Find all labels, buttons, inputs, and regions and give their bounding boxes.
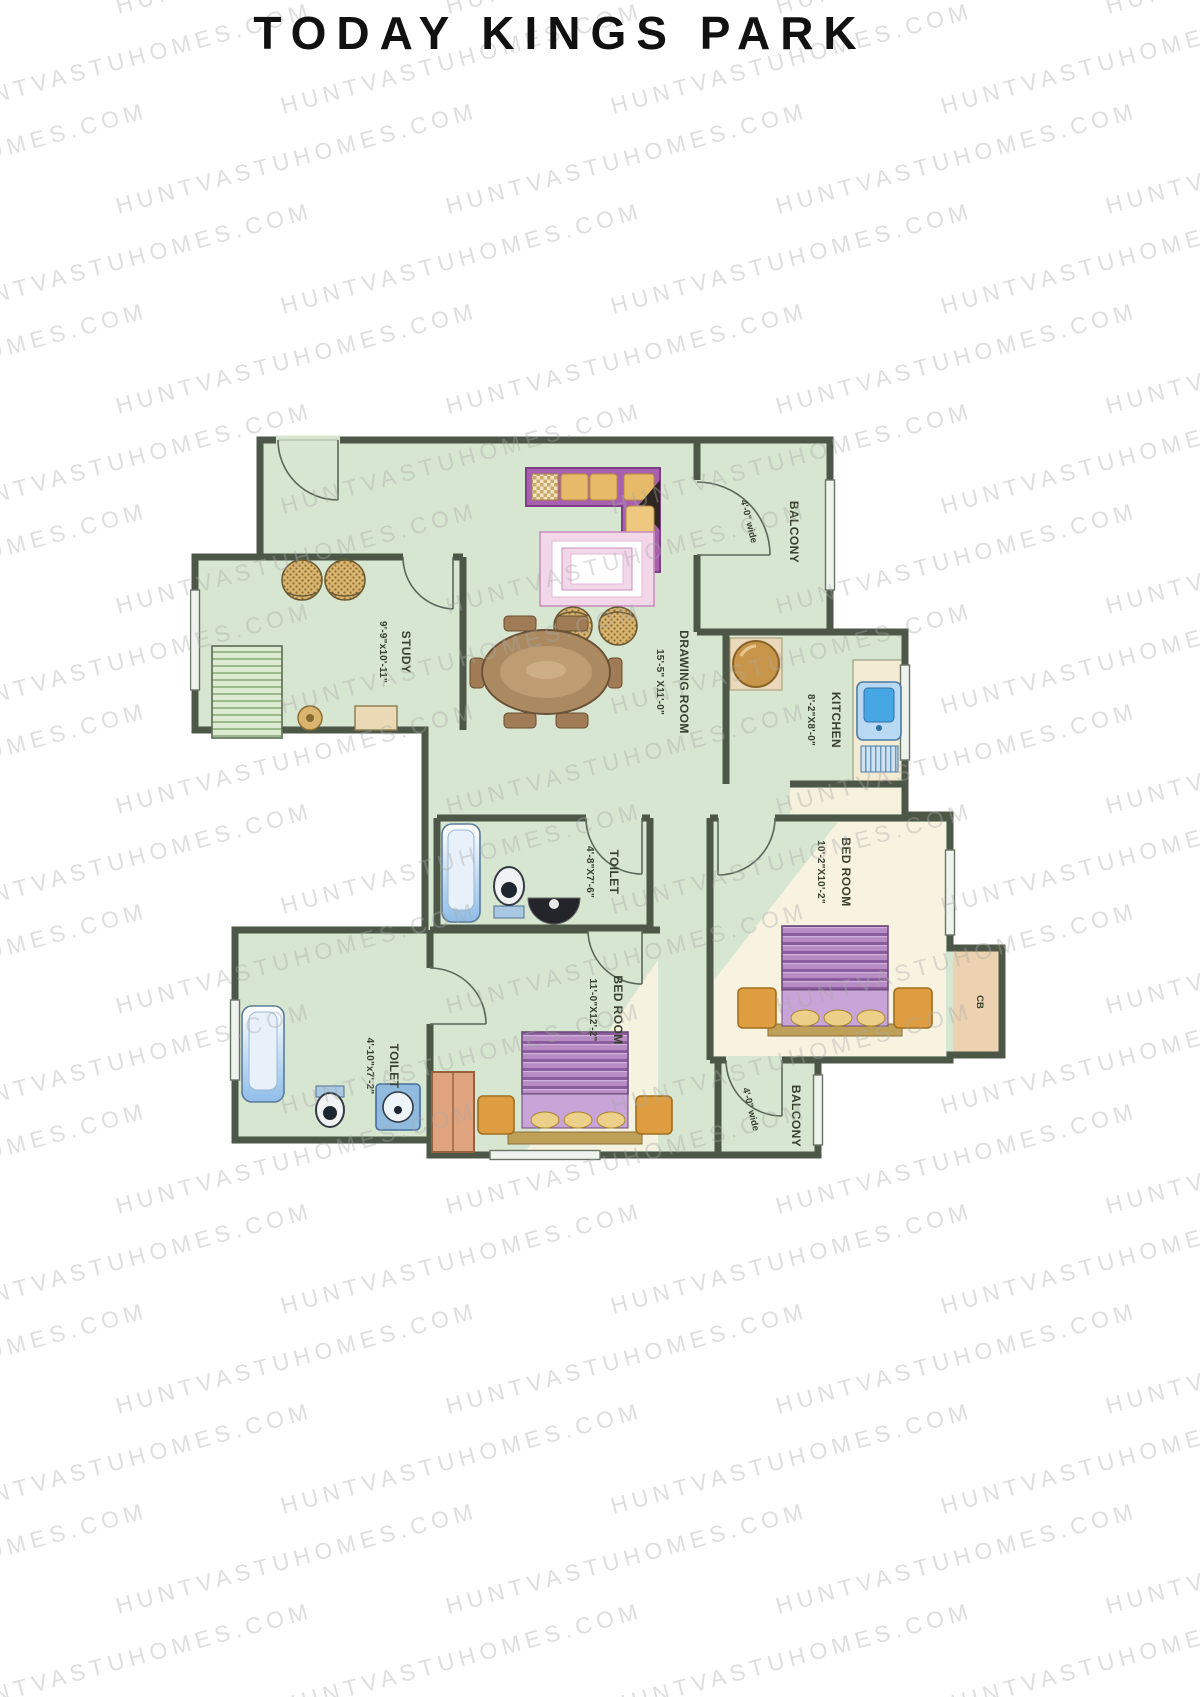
- sofa-cushion: [590, 474, 617, 500]
- watermark-text: HUNTVASTUHOMES.COM: [1103, 297, 1200, 420]
- study-grille: [212, 646, 282, 738]
- sofa-cushion: [561, 474, 588, 500]
- dining-chair: [556, 616, 588, 631]
- watermark-text: HUNTVASTUHOMES.COM: [0, 1397, 315, 1520]
- watermark-text: HUNTVASTUHOMES.COM: [113, 297, 481, 420]
- dining-chair: [556, 713, 588, 728]
- floorplan-container: STUDY 9'-9"x10'-11" DRAWING ROOM 15'-5" …: [190, 420, 1010, 1170]
- watermark-text: HUNTVASTUHOMES.COM: [0, 1297, 150, 1420]
- page: { "title": "TODAY KINGS PARK", "watermar…: [0, 0, 1200, 1697]
- watermark-text: HUNTVASTUHOMES.COM: [608, 1197, 976, 1320]
- watermark-text: HUNTVASTUHOMES.COM: [443, 1497, 811, 1620]
- study-window: [191, 590, 200, 690]
- watermark-text: HUNTVASTUHOMES.COM: [773, 1497, 1141, 1620]
- watermark-text: HUNTVASTUHOMES.COM: [0, 497, 150, 620]
- rug: [540, 532, 654, 606]
- nightstand: [738, 988, 776, 1028]
- svg-text:BED ROOM: BED ROOM: [839, 837, 853, 906]
- svg-text:DRAWING ROOM: DRAWING ROOM: [677, 630, 691, 733]
- svg-text:KITCHEN: KITCHEN: [829, 692, 843, 748]
- svg-text:10'-2"X10'-2": 10'-2"X10'-2": [815, 840, 826, 904]
- watermark-text: HUNTVASTUHOMES.COM: [773, 1297, 1141, 1420]
- page-title: TODAY KINGS PARK: [0, 6, 1120, 60]
- wc-tank: [494, 906, 524, 918]
- svg-text:15'-5" X11'-0": 15'-5" X11'-0": [654, 649, 665, 715]
- floor-plan: STUDY 9'-9"x10'-11" DRAWING ROOM 15'-5" …: [190, 420, 1010, 1165]
- study-chair: [282, 560, 322, 600]
- svg-text:4'-8"X7'-6": 4'-8"X7'-6": [584, 846, 595, 898]
- watermark-text: HUNTVASTUHOMES.COM: [1103, 1297, 1200, 1420]
- study-chair: [325, 560, 365, 600]
- svg-text:11'-0"X12'-2": 11'-0"X12'-2": [587, 979, 598, 1042]
- watermark-text: HUNTVASTUHOMES.COM: [0, 297, 150, 420]
- nightstand: [636, 1096, 672, 1134]
- svg-text:9'-9"x10'-11": 9'-9"x10'-11": [377, 621, 388, 683]
- balcony-bottom-window: [814, 1075, 823, 1145]
- watermark-text: HUNTVASTUHOMES.COM: [0, 197, 315, 320]
- cupboard-label: CB: [974, 995, 985, 1009]
- watermark-text: HUNTVASTUHOMES.COM: [938, 1197, 1200, 1320]
- watermark-text: HUNTVASTUHOMES.COM: [278, 1597, 646, 1697]
- watermark-text: HUNTVASTUHOMES.COM: [1103, 497, 1200, 620]
- pillow: [824, 1010, 852, 1026]
- dining-chair: [504, 616, 536, 631]
- nightstand: [894, 988, 932, 1028]
- svg-text:BALCONY: BALCONY: [789, 1085, 803, 1147]
- watermark-text: HUNTVASTUHOMES.COM: [278, 1197, 646, 1320]
- pillow: [564, 1112, 592, 1128]
- bedroom-right-window: [946, 850, 955, 935]
- svg-text:TOILET: TOILET: [387, 1044, 401, 1089]
- watermark-text: HUNTVASTUHOMES.COM: [608, 1397, 976, 1520]
- svg-text:4'-10"x7'-2": 4'-10"x7'-2": [364, 1038, 375, 1095]
- watermark-text: HUNTVASTUHOMES.COM: [1103, 897, 1200, 1020]
- watermark-text: HUNTVASTUHOMES.COM: [113, 1497, 481, 1620]
- watermark-text: HUNTVASTUHOMES.COM: [0, 1097, 150, 1220]
- svg-text:8'-2"X8'-0": 8'-2"X8'-0": [805, 694, 816, 746]
- watermark-text: HUNTVASTUHOMES.COM: [443, 297, 811, 420]
- study-desk: [355, 706, 397, 730]
- watermark-text: HUNTVASTUHOMES.COM: [113, 97, 481, 220]
- svg-text:STUDY: STUDY: [399, 631, 413, 674]
- watermark-text: HUNTVASTUHOMES.COM: [0, 697, 150, 820]
- watermark-text: HUNTVASTUHOMES.COM: [1103, 1097, 1200, 1220]
- watermark-text: HUNTVASTUHOMES.COM: [278, 197, 646, 320]
- watermark-text: HUNTVASTUHOMES.COM: [0, 1597, 315, 1697]
- watermark-text: HUNTVASTUHOMES.COM: [608, 1597, 976, 1697]
- watermark-text: HUNTVASTUHOMES.COM: [1103, 697, 1200, 820]
- watermark-text: HUNTVASTUHOMES.COM: [938, 1597, 1200, 1697]
- watermark-text: HUNTVASTUHOMES.COM: [1103, 97, 1200, 220]
- watermark-text: HUNTVASTUHOMES.COM: [443, 97, 811, 220]
- nightstand: [478, 1096, 514, 1134]
- drain-board: [861, 746, 898, 772]
- sofa-cushion: [532, 474, 558, 500]
- watermark-text: HUNTVASTUHOMES.COM: [1103, 1497, 1200, 1620]
- balcony-top-window: [826, 480, 835, 590]
- bedroom-bottom-window: [490, 1151, 600, 1160]
- kitchen-window: [901, 665, 910, 760]
- watermark-text: HUNTVASTUHOMES.COM: [278, 1397, 646, 1520]
- svg-text:CB: CB: [974, 995, 985, 1009]
- bed-base: [508, 1132, 642, 1144]
- watermark-text: HUNTVASTUHOMES.COM: [113, 1297, 481, 1420]
- pillow: [531, 1112, 559, 1128]
- watermark-text: HUNTVASTUHOMES.COM: [773, 297, 1141, 420]
- watermark-text: HUNTVASTUHOMES.COM: [608, 197, 976, 320]
- fridge: [733, 641, 779, 687]
- pillow: [597, 1112, 625, 1128]
- watermark-text: HUNTVASTUHOMES.COM: [0, 897, 150, 1020]
- watermark-text: HUNTVASTUHOMES.COM: [0, 1497, 150, 1620]
- bed-blanket: [782, 926, 888, 990]
- watermark-text: HUNTVASTUHOMES.COM: [0, 1197, 315, 1320]
- watermark-text: HUNTVASTUHOMES.COM: [0, 97, 150, 220]
- dining-chair: [504, 713, 536, 728]
- pillow: [791, 1010, 819, 1026]
- watermark-text: HUNTVASTUHOMES.COM: [443, 1297, 811, 1420]
- watermark-text: HUNTVASTUHOMES.COM: [938, 197, 1200, 320]
- svg-text:BALCONY: BALCONY: [787, 501, 801, 563]
- pillow: [857, 1010, 885, 1026]
- watermark-text: HUNTVASTUHOMES.COM: [773, 97, 1141, 220]
- watermark-text: HUNTVASTUHOMES.COM: [938, 1397, 1200, 1520]
- toilet-bottom-window: [231, 1000, 240, 1080]
- svg-text:TOILET: TOILET: [607, 850, 621, 895]
- svg-text:BED ROOM: BED ROOM: [611, 975, 625, 1044]
